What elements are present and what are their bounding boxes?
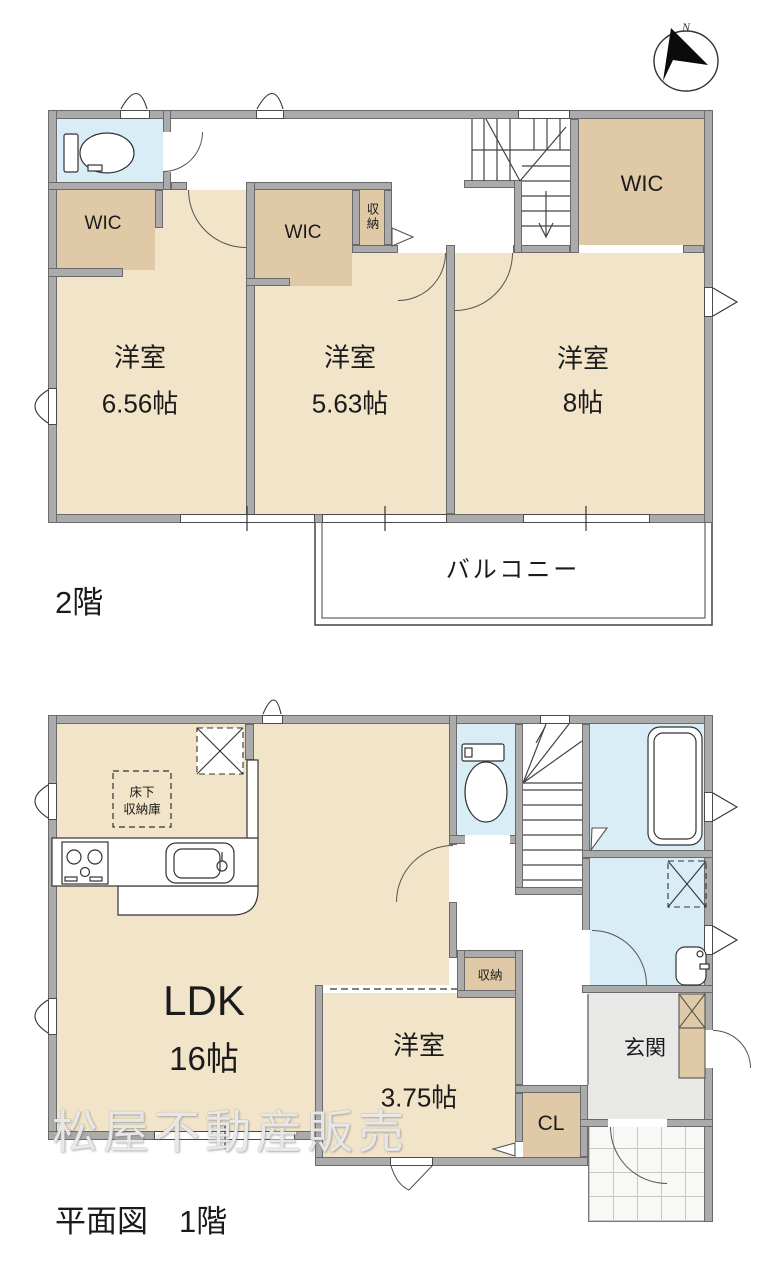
wall (48, 268, 123, 277)
door-opening (515, 1142, 523, 1157)
window (523, 514, 650, 523)
closet-1f-label: 収納 (477, 965, 502, 984)
window (704, 925, 713, 955)
wall (48, 715, 713, 724)
bedroom3-size: 8帖 (563, 383, 603, 420)
wall (246, 182, 255, 523)
window (256, 110, 284, 119)
wall (570, 119, 579, 253)
door-opening (455, 245, 513, 253)
window (322, 514, 447, 523)
window (262, 715, 283, 724)
bedroom3-name: 洋室 (557, 339, 609, 376)
wall (446, 245, 455, 514)
closet-2f-label: 収納 (363, 203, 382, 232)
wall (246, 182, 392, 190)
wall (582, 850, 713, 858)
closet-door-leaf (392, 228, 413, 246)
floor1-label: 平面図 1階 (55, 1196, 227, 1241)
window (180, 514, 315, 523)
window (48, 783, 57, 820)
room-ldk (57, 724, 449, 985)
watermark: 松屋不動産販売 (52, 1096, 409, 1162)
floorplan-canvas: N 洋室 6.56帖 洋室 5.63帖 洋室 8帖 WIC WIC WIC 収納… (0, 0, 771, 1280)
stairs-1f-icon (523, 724, 582, 880)
wall (515, 950, 523, 1085)
wall (246, 278, 290, 286)
door-opening (579, 245, 683, 253)
wall (48, 715, 57, 1140)
bedroom1-name: 洋室 (114, 338, 166, 375)
wic-left-label: WIC (85, 213, 122, 235)
window (48, 998, 57, 1035)
bedroom2-size: 5.63帖 (312, 384, 389, 421)
door-opening (398, 245, 446, 253)
door-opening (582, 930, 590, 985)
room-toilet-1f (457, 724, 515, 835)
window (704, 792, 713, 822)
floor2-label: 2階 (55, 577, 103, 622)
underfloor-storage-line2: 収納庫 (123, 799, 161, 818)
wall (514, 180, 522, 253)
door-swing-mark (391, 1166, 432, 1190)
window (704, 287, 713, 317)
wall (48, 182, 171, 190)
wall (457, 950, 523, 958)
door-opening (465, 835, 510, 844)
compass-icon: N (646, 18, 726, 106)
wall (449, 902, 457, 958)
wall (457, 990, 523, 998)
wall (352, 190, 360, 245)
wall (155, 190, 163, 228)
balcony-label: バルコニー (446, 550, 581, 585)
wall (515, 887, 590, 895)
wall (683, 245, 704, 253)
door-opening (704, 1030, 713, 1068)
wall (384, 190, 392, 245)
ldk-name: LDK (163, 977, 245, 1025)
wall (515, 724, 523, 895)
door-arc (163, 132, 203, 172)
wall (515, 1085, 588, 1093)
door-opening (187, 182, 246, 190)
cl-label: CL (538, 1112, 565, 1136)
wall (515, 1093, 523, 1142)
bedroom1-size: 6.56帖 (102, 384, 179, 421)
ldk-size: 16帖 (169, 1032, 239, 1080)
bedroom2-name: 洋室 (324, 338, 376, 375)
window (120, 110, 150, 119)
wic-right-label: WIC (621, 171, 664, 197)
wall (245, 724, 254, 760)
wall (352, 245, 398, 253)
genkan-label: 玄関 (624, 1032, 666, 1062)
room-toilet-2f (57, 119, 163, 182)
compass-north-label: N (681, 20, 691, 34)
window (518, 110, 570, 119)
wic-mid-label: WIC (285, 222, 322, 244)
door-arc (713, 1030, 751, 1068)
wall (582, 985, 713, 993)
wall (48, 110, 57, 523)
wall (171, 182, 187, 190)
door-opening (608, 1119, 667, 1127)
bedroom-1f-name: 洋室 (393, 1026, 445, 1063)
window (540, 715, 570, 724)
wall (449, 715, 457, 845)
room-bathroom (590, 724, 704, 850)
wall (582, 724, 590, 858)
window (48, 388, 57, 425)
